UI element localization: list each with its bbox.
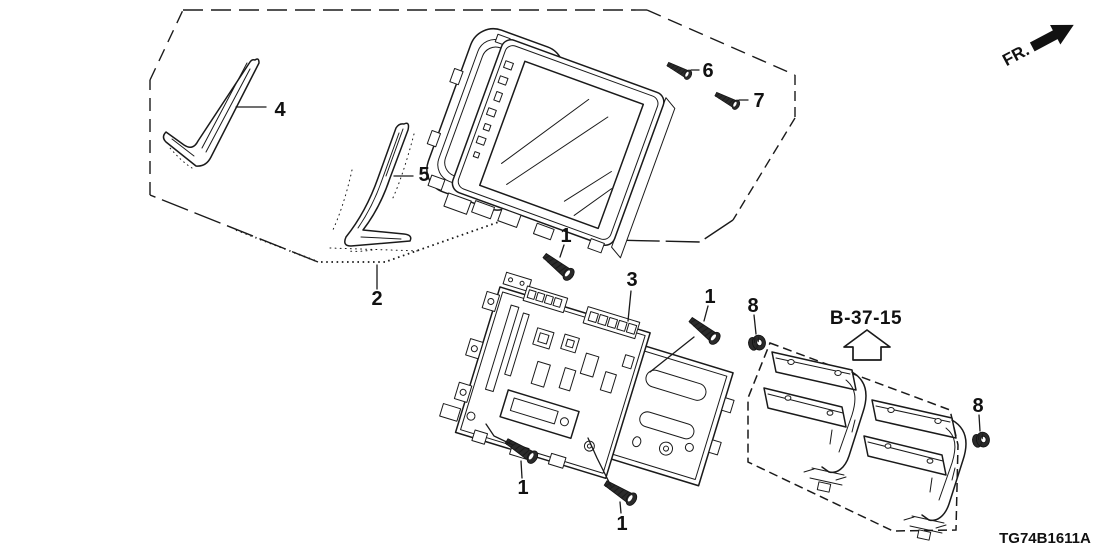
nut-part8-right	[971, 431, 991, 449]
screw-part7	[713, 90, 741, 111]
callout-4[interactable]: 4	[274, 99, 286, 121]
nut-part8-left	[747, 334, 767, 352]
audio-unit	[435, 266, 750, 512]
bracket-box	[748, 343, 966, 540]
callout-8-left[interactable]: 8	[747, 295, 758, 317]
callout-3[interactable]: 3	[626, 269, 637, 291]
callout-8-right[interactable]: 8	[972, 395, 983, 417]
bracket-left	[764, 352, 866, 492]
cross-reference-label[interactable]: B-37-15	[830, 308, 902, 329]
callout-2[interactable]: 2	[371, 288, 382, 310]
callout-7[interactable]: 7	[753, 90, 764, 112]
front-direction-label: FR.	[999, 40, 1032, 70]
up-block-arrow-icon	[844, 330, 890, 360]
front-direction-indicator: FR.	[999, 15, 1079, 72]
callout-5[interactable]: 5	[418, 164, 429, 186]
callout-1-bottom-left[interactable]: 1	[517, 477, 528, 499]
screw-part1-top	[540, 250, 576, 282]
cross-reference[interactable]: B-37-15	[830, 308, 902, 360]
parts-diagram: 4 5 6 7 1 1 1 1 2 3 8 8 B-37-15 FR. TG74…	[0, 0, 1108, 554]
bracket-right	[864, 400, 966, 540]
callout-1-top[interactable]: 1	[560, 225, 571, 247]
diagram-canvas: 4 5 6 7 1 1 1 1 2 3 8 8 B-37-15 FR. TG74…	[0, 0, 1108, 554]
front-direction-arrow-icon	[1027, 15, 1079, 56]
callout-1-bottom-mid[interactable]: 1	[616, 513, 627, 535]
diagram-code: TG74B1611A	[999, 530, 1091, 547]
screw-part6	[665, 60, 693, 81]
callout-6[interactable]: 6	[702, 60, 713, 82]
garnish-trim-right	[330, 123, 420, 251]
callout-1-right[interactable]: 1	[704, 286, 715, 308]
garnish-trim-left	[164, 59, 260, 168]
